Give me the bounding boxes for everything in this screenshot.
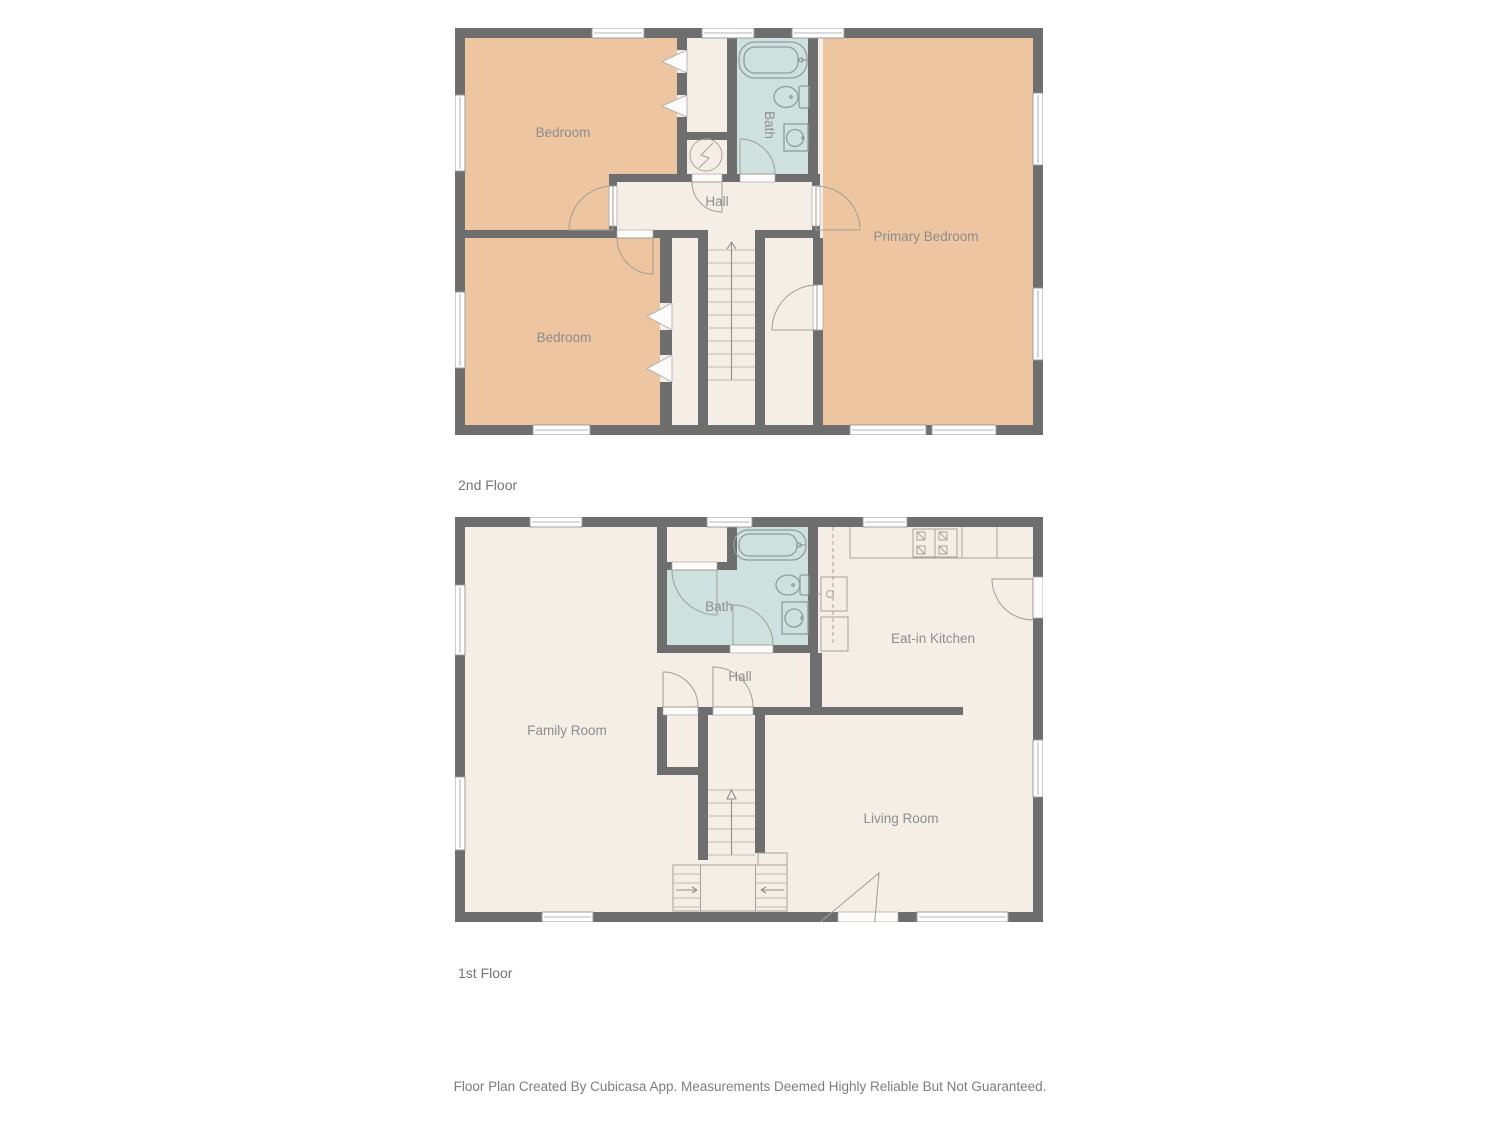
room-label-bath: Bath: [705, 599, 733, 614]
floor-plan-1st-svg: Family Room Bath Hall Eat-in Kitchen Liv…: [455, 517, 1043, 922]
room-label-bath: Bath: [762, 111, 777, 139]
footer-disclaimer: Floor Plan Created By Cubicasa App. Meas…: [0, 1079, 1500, 1094]
floor-plan-2nd-svg: Bedroom Bedroom Primary Bedroom Hall Bat…: [455, 28, 1043, 435]
floor-plan-page: { "page": { "background": "#ffffff", "fo…: [0, 0, 1500, 1125]
room-label-primary-bedroom: Primary Bedroom: [873, 229, 978, 244]
room-label-hall: Hall: [728, 669, 751, 684]
room-label-family-room: Family Room: [527, 723, 607, 738]
room-label-kitchen: Eat-in Kitchen: [891, 631, 975, 646]
floor-plan-2nd: Bedroom Bedroom Primary Bedroom Hall Bat…: [455, 28, 1043, 440]
floor-plan-1st: Family Room Bath Hall Eat-in Kitchen Liv…: [455, 517, 1043, 927]
closet: [667, 527, 727, 562]
room-bath: [737, 38, 808, 174]
floor-title-1st: 1st Floor: [458, 965, 512, 981]
room-label-living-room: Living Room: [863, 811, 938, 826]
room-label-hall: Hall: [705, 194, 728, 209]
room-label-bedroom-top: Bedroom: [536, 125, 591, 140]
room-label-bedroom-bottom: Bedroom: [537, 330, 592, 345]
floor-title-2nd: 2nd Floor: [458, 477, 517, 493]
